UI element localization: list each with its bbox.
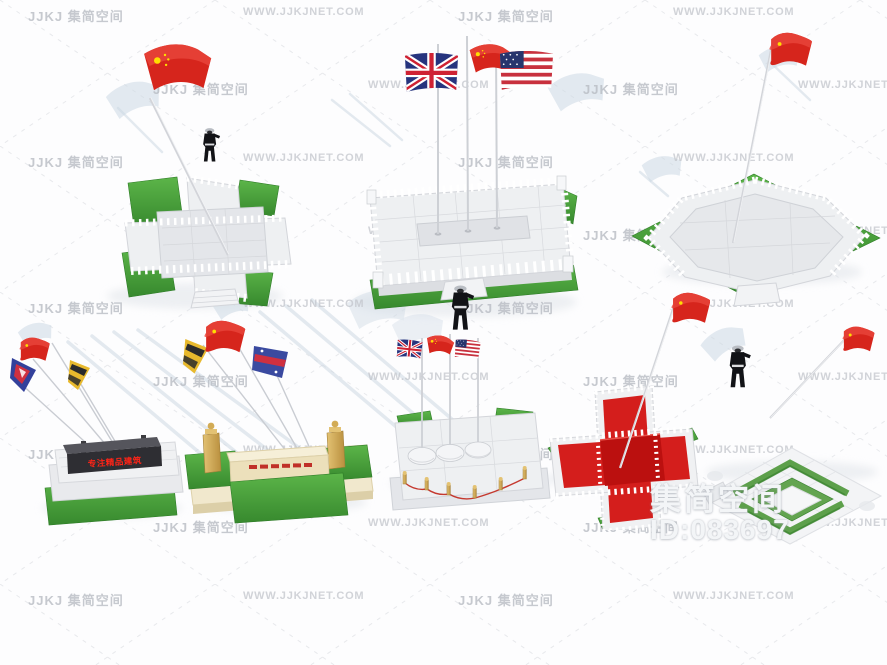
preview-canvas: JJKJ 集简空间WWW.JJKJNET.COMJJKJ 集简空间WWW.JJK… (0, 0, 887, 665)
watermark-logo: JJKJ 集简空间 (28, 590, 124, 609)
podium-base (185, 421, 373, 523)
watermark-logo: JJKJ 集简空间 (458, 590, 554, 609)
navy-pennant-icon (10, 358, 36, 392)
model-led-sign-podium: 专注精品建筑 (5, 325, 185, 535)
flagpole (770, 336, 849, 418)
site-badge-brand: 集简空间 (650, 484, 790, 516)
yellow-pennant-icon (183, 339, 208, 374)
site-badge: 集简空间 ID:083697 (650, 484, 790, 544)
red-flag-icon (20, 338, 50, 361)
site-badge-id: ID:083697 (650, 516, 790, 545)
uk-flag-icon (403, 50, 462, 96)
red-flag-icon (843, 327, 875, 352)
red-flag-icon (204, 321, 245, 352)
china-flag-icon (144, 44, 211, 90)
pale-bush (859, 501, 875, 511)
watermark-logo: JJKJ 集简空间 (28, 6, 124, 25)
grass-mat (230, 473, 348, 523)
gold-pillar (203, 423, 221, 473)
watermark-url: WWW.JJKJNET.COM (243, 590, 364, 602)
watermark-url: WWW.JJKJNET.COM (673, 590, 794, 602)
model-twin-pillar-podium (175, 305, 380, 540)
platform (122, 177, 291, 308)
saluting-soldier (203, 128, 220, 161)
watermark-logo: JJKJ 集简空间 (458, 6, 554, 25)
watermark-url: WWW.JJKJNET.COM (673, 6, 794, 18)
watermark-url: WWW.JJKJNET.COM (243, 6, 364, 18)
yellow-pennant-icon (68, 360, 90, 390)
china-flag-icon (769, 33, 812, 66)
blue-banner-icon (252, 346, 288, 378)
saluting-soldier (730, 345, 751, 387)
uk-flag-icon (395, 337, 425, 361)
model-dome-base-three-flag-platform (385, 328, 565, 523)
platform (632, 174, 880, 306)
model-octagonal-balustrade-platform (630, 28, 887, 306)
gold-pillar (327, 421, 345, 469)
usa-flag-icon (498, 48, 557, 94)
model-cross-plaza-platform (95, 40, 310, 315)
pale-bush (707, 471, 723, 481)
